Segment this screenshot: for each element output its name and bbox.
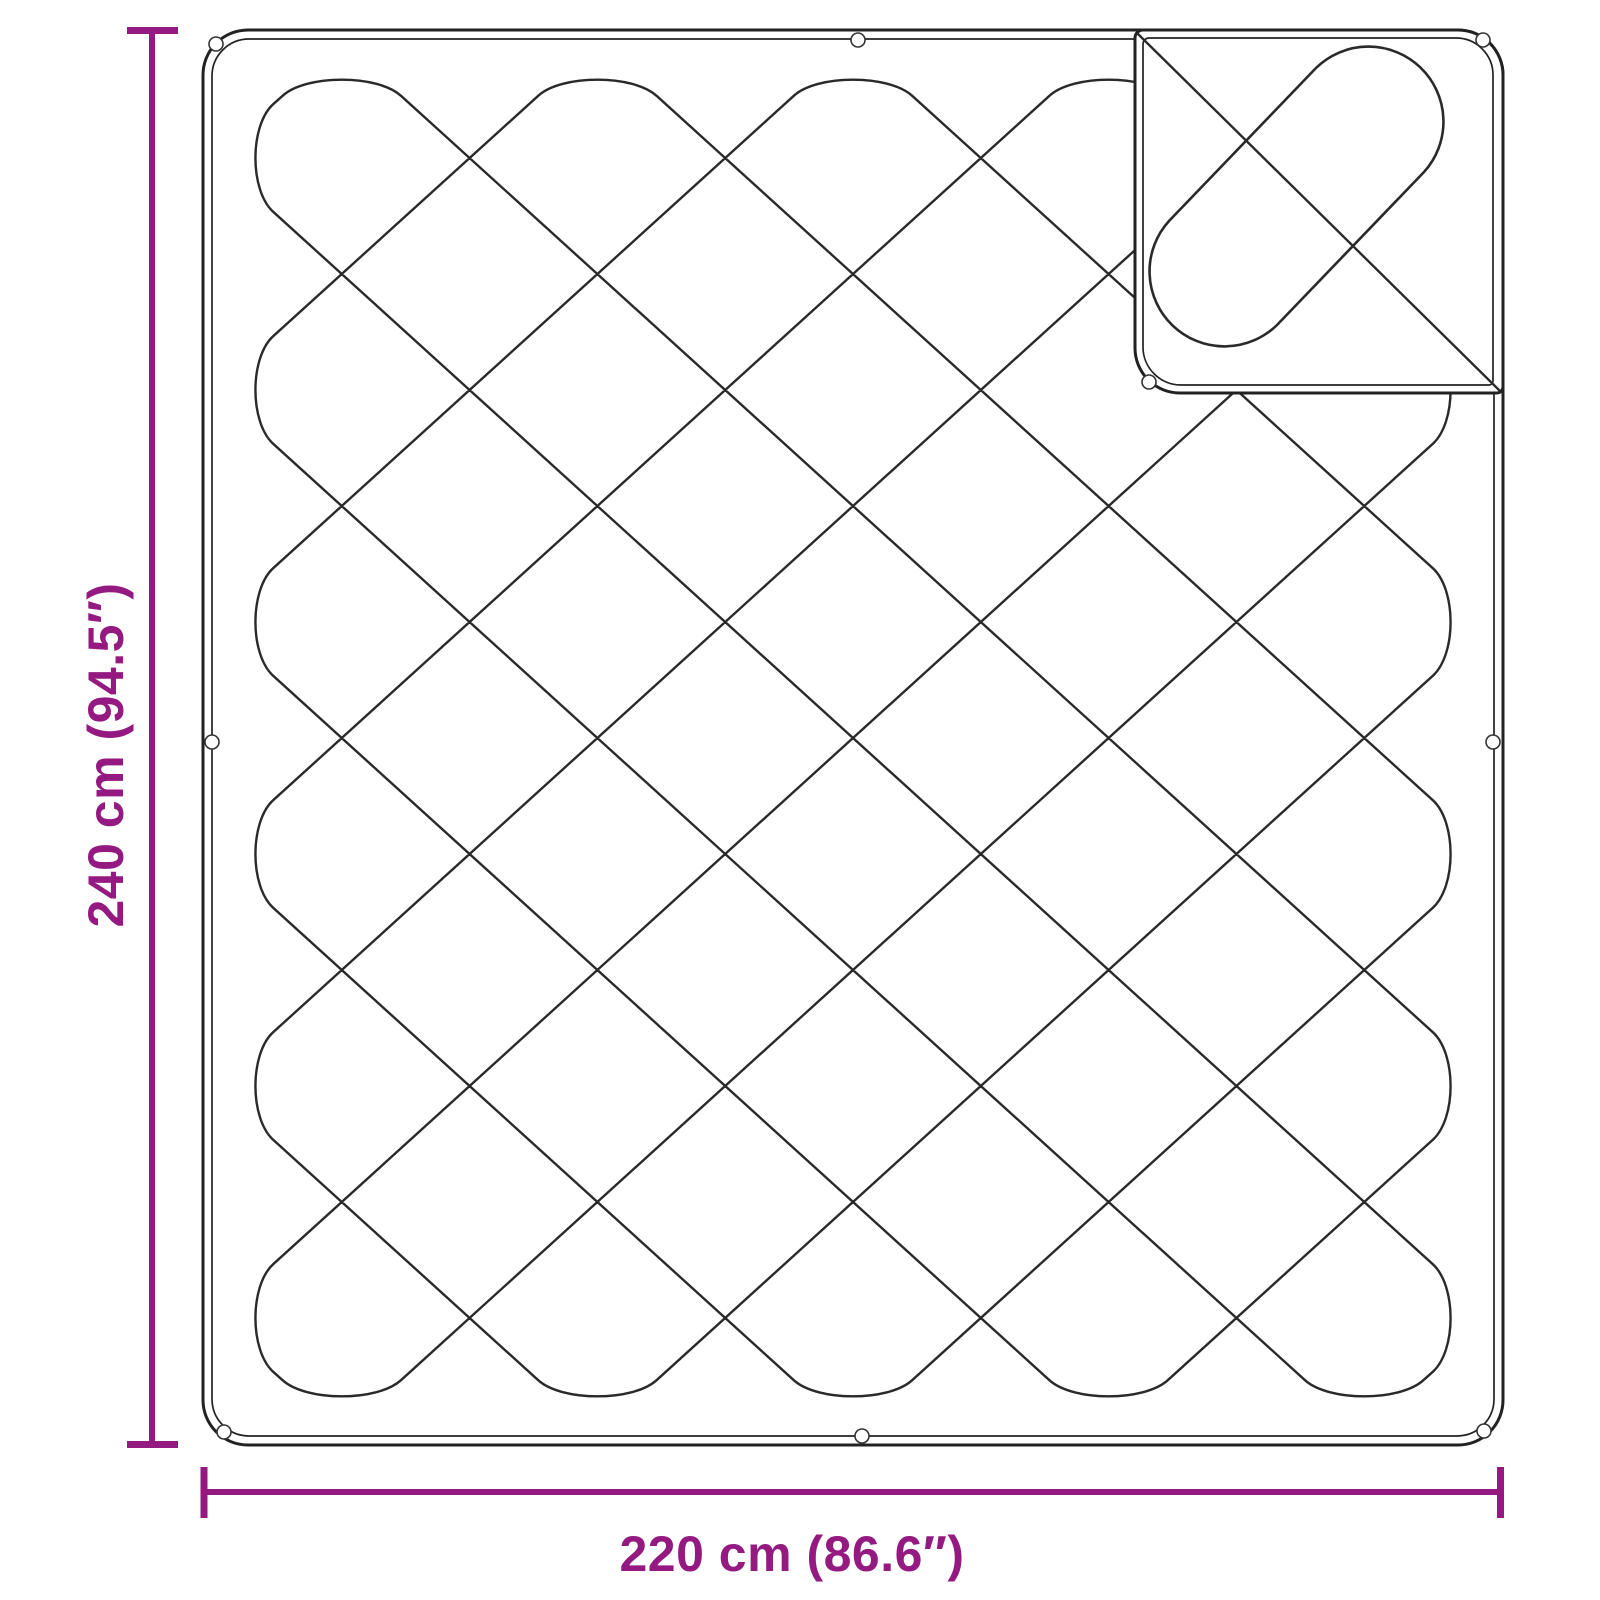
width-dimension-label: 220 cm (86.6″): [619, 1525, 964, 1583]
eyelet: [205, 735, 219, 749]
blanket-dimension-diagram: [0, 0, 1600, 1600]
eyelet: [1142, 375, 1156, 389]
eyelet: [217, 1425, 231, 1439]
eyelet: [1477, 1424, 1491, 1438]
height-dimension-label: 240 cm (94.5″): [77, 582, 135, 927]
eyelet: [1476, 33, 1490, 47]
folded-corner-flap: [1135, 30, 1503, 393]
eyelet: [851, 33, 865, 47]
eyelet: [1486, 735, 1500, 749]
eyelet: [855, 1429, 869, 1443]
eyelet: [209, 37, 223, 51]
